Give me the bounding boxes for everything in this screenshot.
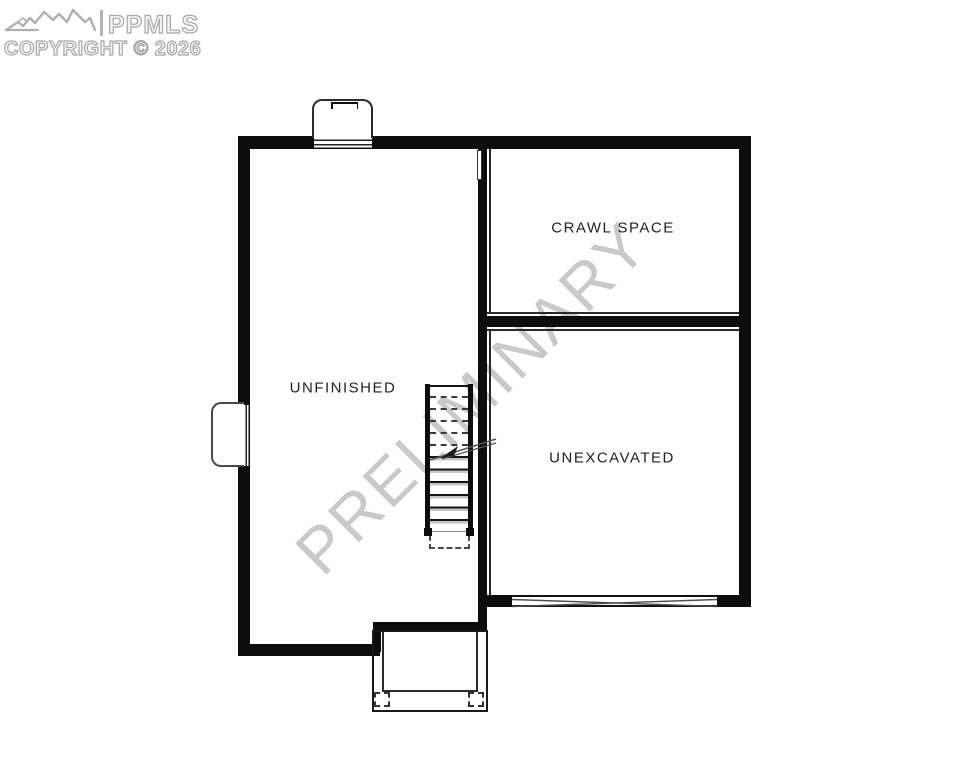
wall-top-right-segment (372, 136, 751, 149)
stair-top-tread-line (430, 385, 468, 387)
crawlspace-face-line-left (489, 149, 491, 313)
stair-newel-right (466, 528, 474, 536)
crawlspace-face-line-bottom (487, 312, 739, 314)
porch-inner-line-right (476, 632, 478, 690)
wall-left-upper-segment (238, 136, 250, 405)
floorplan-canvas: PPMLS COPYRIGHT © 2026 PRELIMINARY (0, 0, 960, 768)
mls-branding: PPMLS COPYRIGHT © 2026 (4, 6, 201, 59)
basement-floorplan: UNFINISHED CRAWL SPACE UNEXCAVATED (0, 0, 960, 768)
porch-post-left (374, 692, 390, 707)
stair-dashed-tread (430, 396, 468, 398)
window-well-top-vent (331, 102, 358, 109)
x-braced-opening (512, 595, 717, 607)
brand-row: PPMLS (4, 6, 201, 38)
stair-dashed-tread (430, 408, 468, 410)
wall-right (739, 136, 751, 607)
wall-bottom-right-segment-b (717, 595, 751, 607)
wall-bottom-left (238, 644, 380, 656)
unexcavated-face-line-top (487, 329, 739, 331)
wall-bottom-right-segment-a (487, 595, 512, 607)
stair-newel-left (424, 528, 432, 536)
mountain-range-icon (4, 3, 96, 38)
wall-left-lower-segment (238, 466, 250, 656)
room-label-crawl-space: CRAWL SPACE (551, 220, 674, 237)
porch-inner-line-left (382, 632, 384, 690)
crawlspace-access-panel (477, 150, 482, 180)
porch-post-right (468, 692, 484, 707)
brand-divider-bar (100, 10, 103, 36)
porch-inner-line-bottom (382, 690, 478, 692)
room-label-unexcavated: UNEXCAVATED (549, 450, 675, 467)
mls-logo-text: PPMLS (108, 13, 199, 38)
wall-interior-divider (478, 149, 487, 632)
stair-solid-treads (430, 456, 468, 532)
window-well-left (211, 402, 244, 467)
stair-dashed-tread (430, 420, 468, 422)
copyright-text: COPYRIGHT © 2026 (4, 39, 201, 59)
room-label-unfinished: UNFINISHED (290, 380, 397, 397)
wall-crawlspace-bottom (478, 316, 751, 327)
stair-dashed-landing (429, 536, 470, 549)
